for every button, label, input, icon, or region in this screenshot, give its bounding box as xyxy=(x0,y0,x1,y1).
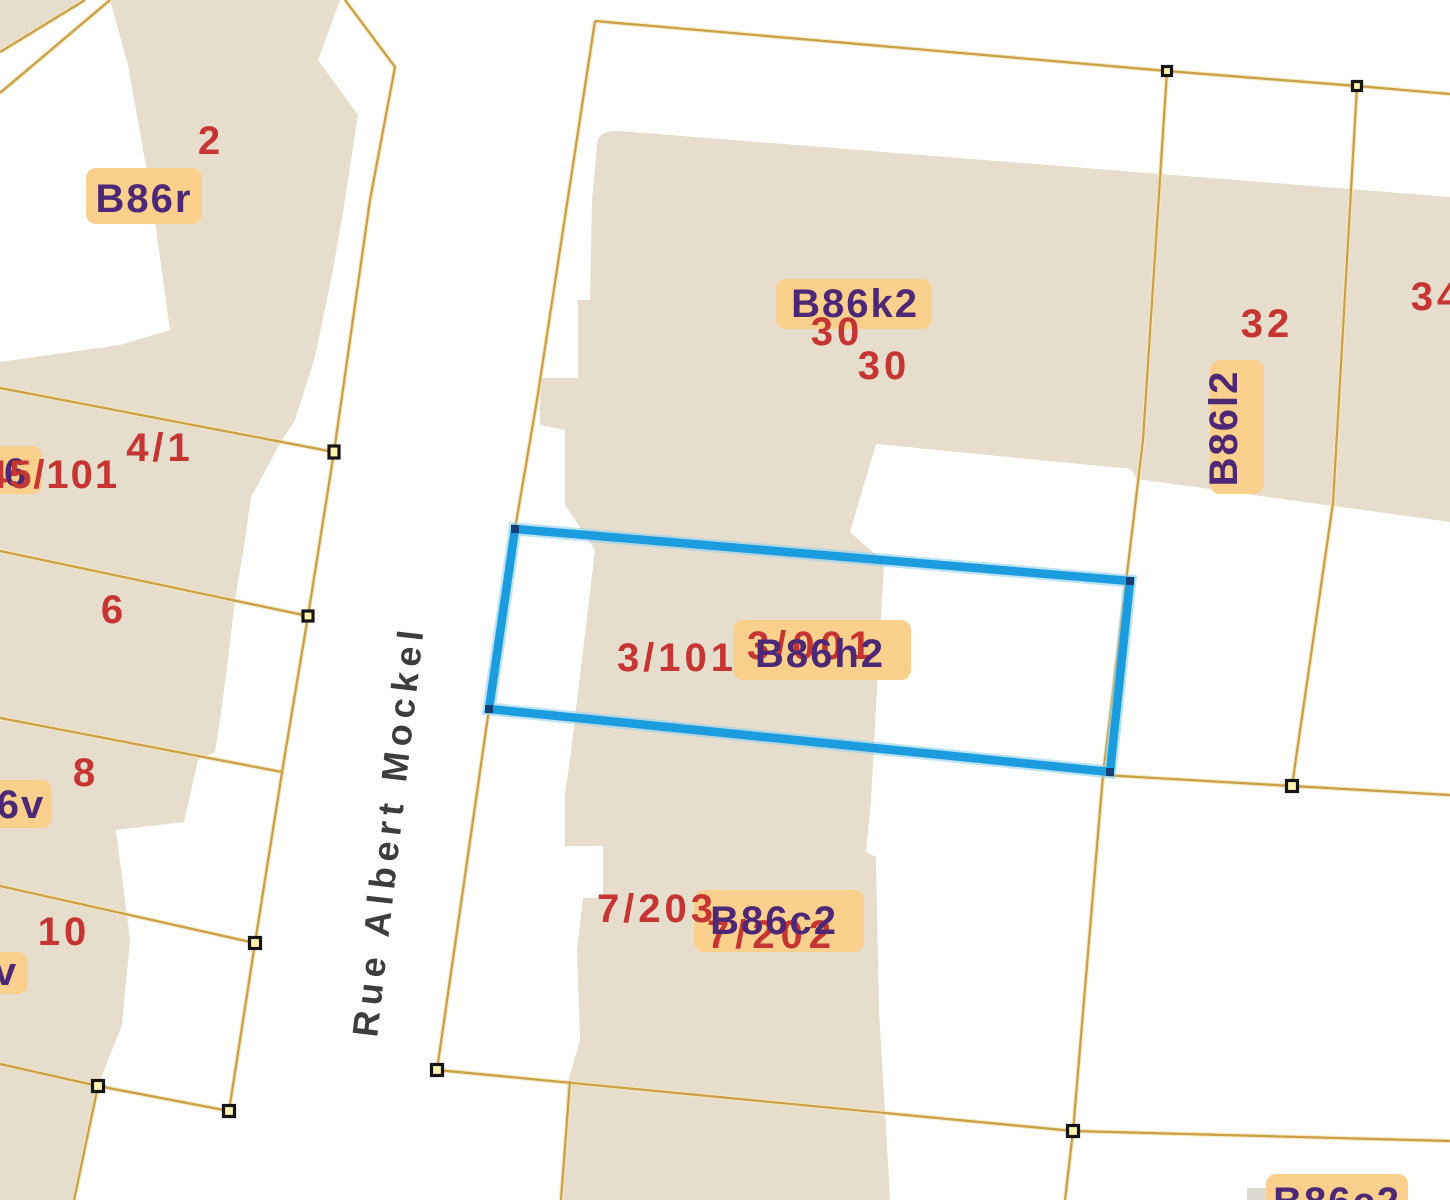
svg-text:30: 30 xyxy=(811,310,864,354)
svg-text:v: v xyxy=(0,950,18,994)
svg-text:7/203: 7/203 xyxy=(597,887,717,931)
svg-text:30: 30 xyxy=(858,344,911,388)
svg-text:2: 2 xyxy=(198,119,224,163)
svg-text:B86h2: B86h2 xyxy=(755,632,885,676)
svg-text:8: 8 xyxy=(73,751,99,795)
svg-text:6: 6 xyxy=(101,588,127,632)
svg-text:3/101: 3/101 xyxy=(617,636,737,680)
svg-text:4/1: 4/1 xyxy=(126,426,194,470)
svg-text:45/101: 45/101 xyxy=(0,453,119,497)
svg-text:B86l2: B86l2 xyxy=(1202,370,1246,487)
svg-text:B86c2: B86c2 xyxy=(710,899,838,943)
svg-text:32: 32 xyxy=(1241,302,1294,346)
svg-text:10: 10 xyxy=(38,910,91,954)
svg-text:34: 34 xyxy=(1411,275,1450,319)
svg-text:6v: 6v xyxy=(0,783,45,827)
svg-text:B86r: B86r xyxy=(96,177,193,221)
svg-text:B86c2: B86c2 xyxy=(1273,1180,1401,1200)
